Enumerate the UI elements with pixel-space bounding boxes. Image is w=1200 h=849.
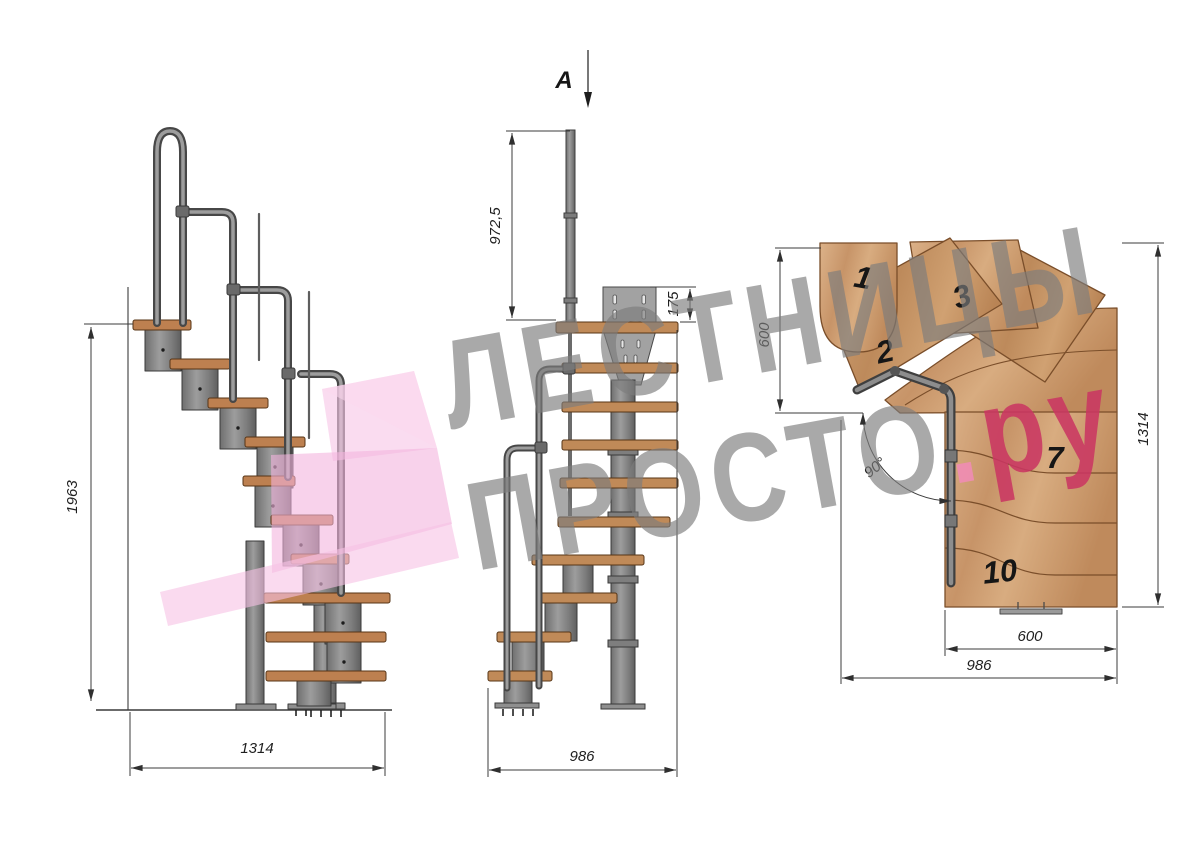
technical-drawing-page: 1 2 3 7 10	[0, 0, 1200, 849]
plan-lower-flight	[945, 412, 1117, 607]
rail-clamp	[535, 442, 547, 453]
dim-width-1314-side: 1314	[240, 740, 273, 757]
dim-angle-90: 90°	[861, 454, 889, 481]
rail-clamp	[563, 363, 575, 374]
dim-width-986-front: 986	[569, 748, 595, 765]
front-bolts	[503, 709, 533, 716]
step-number-7: 7	[1046, 440, 1065, 475]
section-label: A	[554, 67, 572, 94]
step-number-10: 10	[981, 552, 1019, 590]
section-cut-arrow	[584, 50, 592, 108]
front-feet	[495, 703, 645, 709]
rail-joint	[939, 384, 949, 394]
anchor-bolts	[296, 710, 341, 717]
handrail-post	[566, 130, 575, 324]
rail-joint	[890, 366, 900, 376]
front-steps	[488, 322, 678, 681]
central-column	[611, 380, 635, 705]
dim-post-972: 972,5	[487, 207, 504, 245]
plan-view: 1 2 3 7 10	[820, 238, 1117, 614]
staircase-drawing: 1 2 3 7 10	[0, 0, 1200, 849]
dim-height-1963: 1963	[64, 480, 81, 514]
dim-flight-600: 600	[756, 322, 773, 348]
front-view	[488, 50, 678, 716]
post-joint	[564, 298, 577, 303]
post-joint	[564, 213, 577, 218]
rail-collar	[945, 515, 957, 527]
rail-collar	[945, 450, 957, 462]
dim-plate-175: 175	[665, 291, 682, 317]
dim-bottom-600: 600	[1017, 628, 1043, 645]
dim-depth-1314: 1314	[1135, 412, 1152, 445]
dim-total-986: 986	[966, 657, 992, 674]
